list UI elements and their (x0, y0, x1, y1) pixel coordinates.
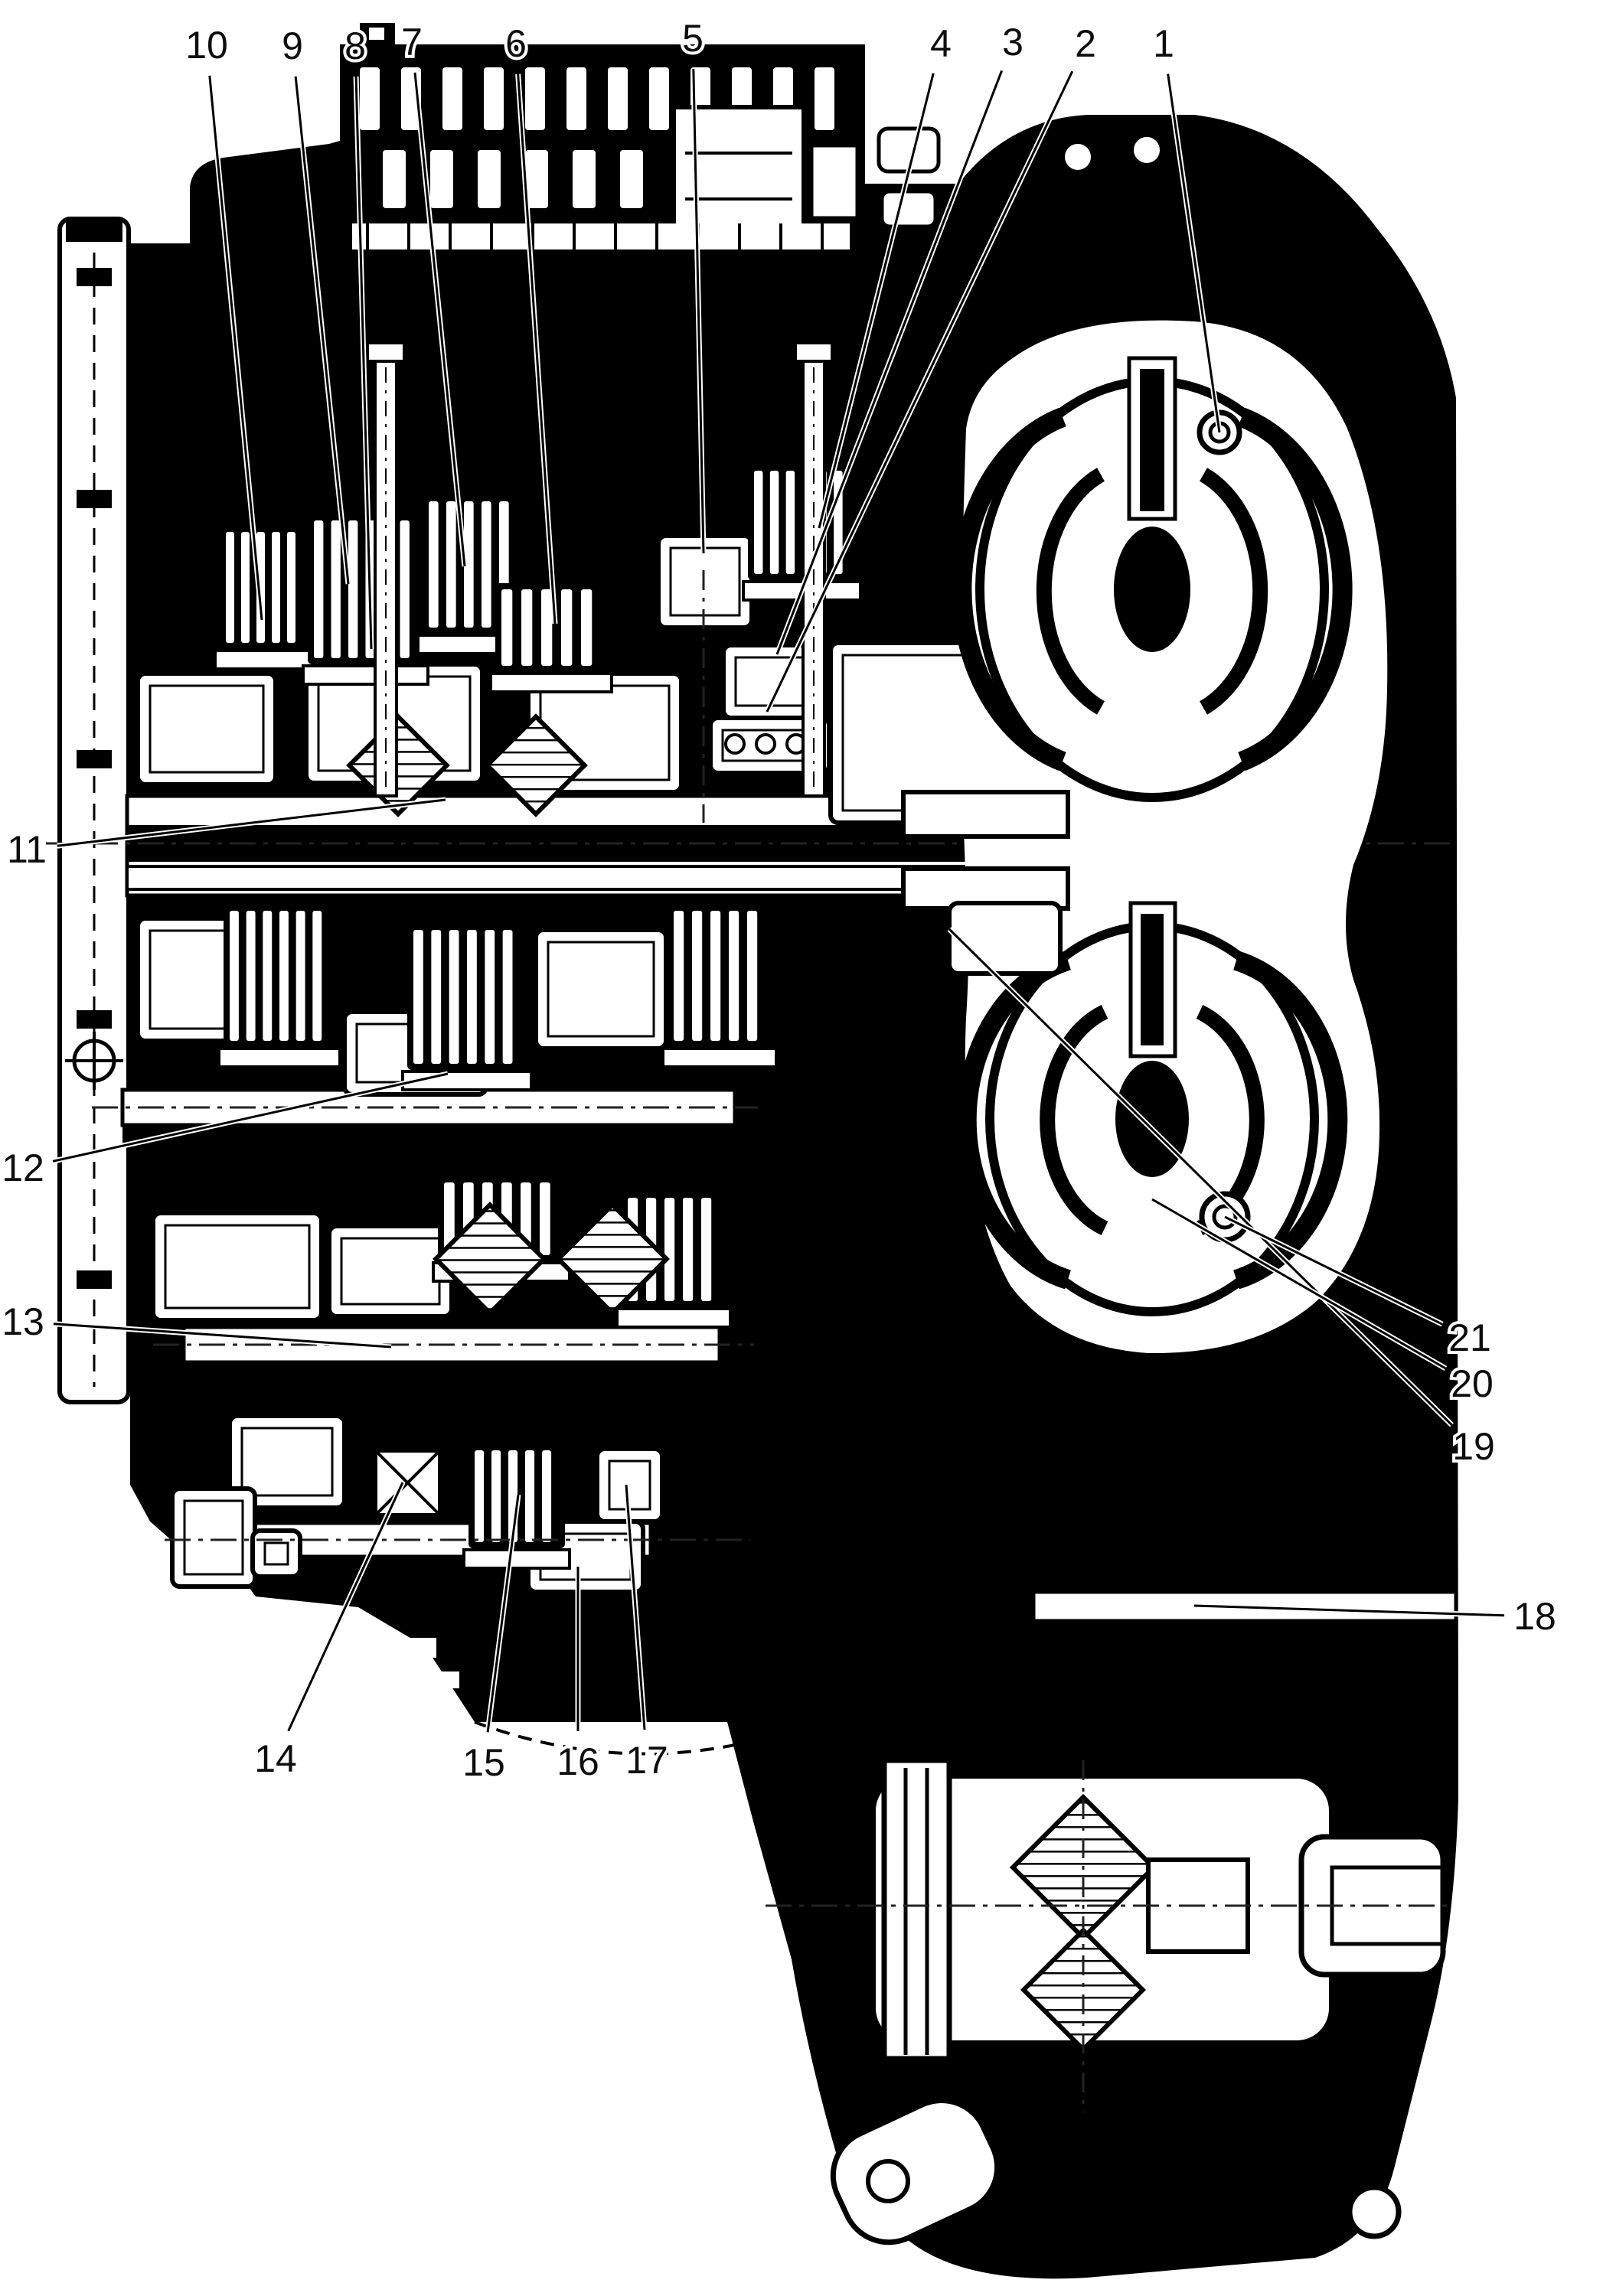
callout-13-label: 13 (2, 1300, 44, 1343)
flange-bolt (77, 490, 112, 508)
drum-hub (153, 1213, 322, 1320)
valve-bore (383, 150, 406, 208)
callout-4-label: 4 (930, 22, 952, 65)
valve-bore (573, 150, 596, 208)
callout-17-label: 17 (625, 1739, 668, 1782)
callout-5-label: 5 (682, 17, 704, 60)
valve-bore (620, 150, 643, 208)
valve-bore (478, 150, 501, 208)
callout-21-label: 21 (1448, 1316, 1491, 1359)
callout-12-label: 12 (2, 1146, 44, 1189)
valve-bore (815, 67, 834, 130)
pan-rib (191, 1638, 436, 1658)
valve-bore (525, 67, 545, 130)
flange-bolt (77, 750, 112, 768)
callout-8-label: 8 (344, 24, 366, 67)
converter-hub-upper (1114, 527, 1190, 652)
callout-14-label: 14 (254, 1737, 297, 1780)
flange-bolt (77, 1010, 112, 1029)
case-rib-window (882, 191, 935, 227)
callout-11-label: 11 (7, 828, 47, 871)
valve-bore (442, 67, 462, 130)
oil-pump-body (949, 903, 1060, 974)
snout-bore (868, 2161, 908, 2201)
converter-hub-lower (1115, 1061, 1189, 1177)
solenoid-body (811, 145, 857, 218)
converter-neck-upper (903, 792, 1068, 837)
bell-boss-bolt (1063, 142, 1093, 172)
flange-bolt (77, 268, 112, 286)
valve-bore (608, 67, 628, 130)
callout-15-label: 15 (462, 1741, 505, 1784)
housing-boss (1350, 2187, 1399, 2236)
callout-10-label: 10 (185, 24, 228, 67)
drum-hub (253, 1531, 300, 1577)
left-cover-flange (60, 219, 129, 1402)
valve-bore (649, 67, 669, 130)
valve-bore (566, 67, 586, 130)
separator-plate (352, 223, 850, 249)
callout-18-label: 18 (1513, 1595, 1556, 1638)
final-drive-ring-gear (884, 1760, 949, 2059)
diagram-canvas: 123456789101112131415161718192021 (0, 0, 1603, 2296)
pan-rib (207, 1671, 459, 1688)
valve-bore (484, 67, 504, 130)
callout-7-label: 7 (401, 21, 423, 64)
drum-hub (536, 930, 666, 1049)
callout-9-label: 9 (282, 24, 303, 67)
callout-6-label: 6 (505, 22, 527, 65)
one-way-clutch-roller (756, 735, 775, 753)
one-way-clutch-roller (726, 735, 744, 753)
bell-boss-bolt (1131, 135, 1162, 165)
callout-3-label: 3 (1002, 21, 1024, 64)
callout-19-label: 19 (1452, 1425, 1495, 1468)
callout-20-label: 20 (1451, 1362, 1494, 1405)
valve-bore (360, 67, 380, 130)
callout-16-label: 16 (557, 1740, 599, 1783)
valve-bore (430, 150, 453, 208)
flange-bolt (77, 1270, 112, 1289)
drum-hub (138, 673, 276, 784)
callout-1-label: 1 (1153, 22, 1174, 65)
callout-2-label: 2 (1075, 22, 1096, 65)
diagram-page: 123456789101112131415161718192021 (0, 0, 1603, 2296)
